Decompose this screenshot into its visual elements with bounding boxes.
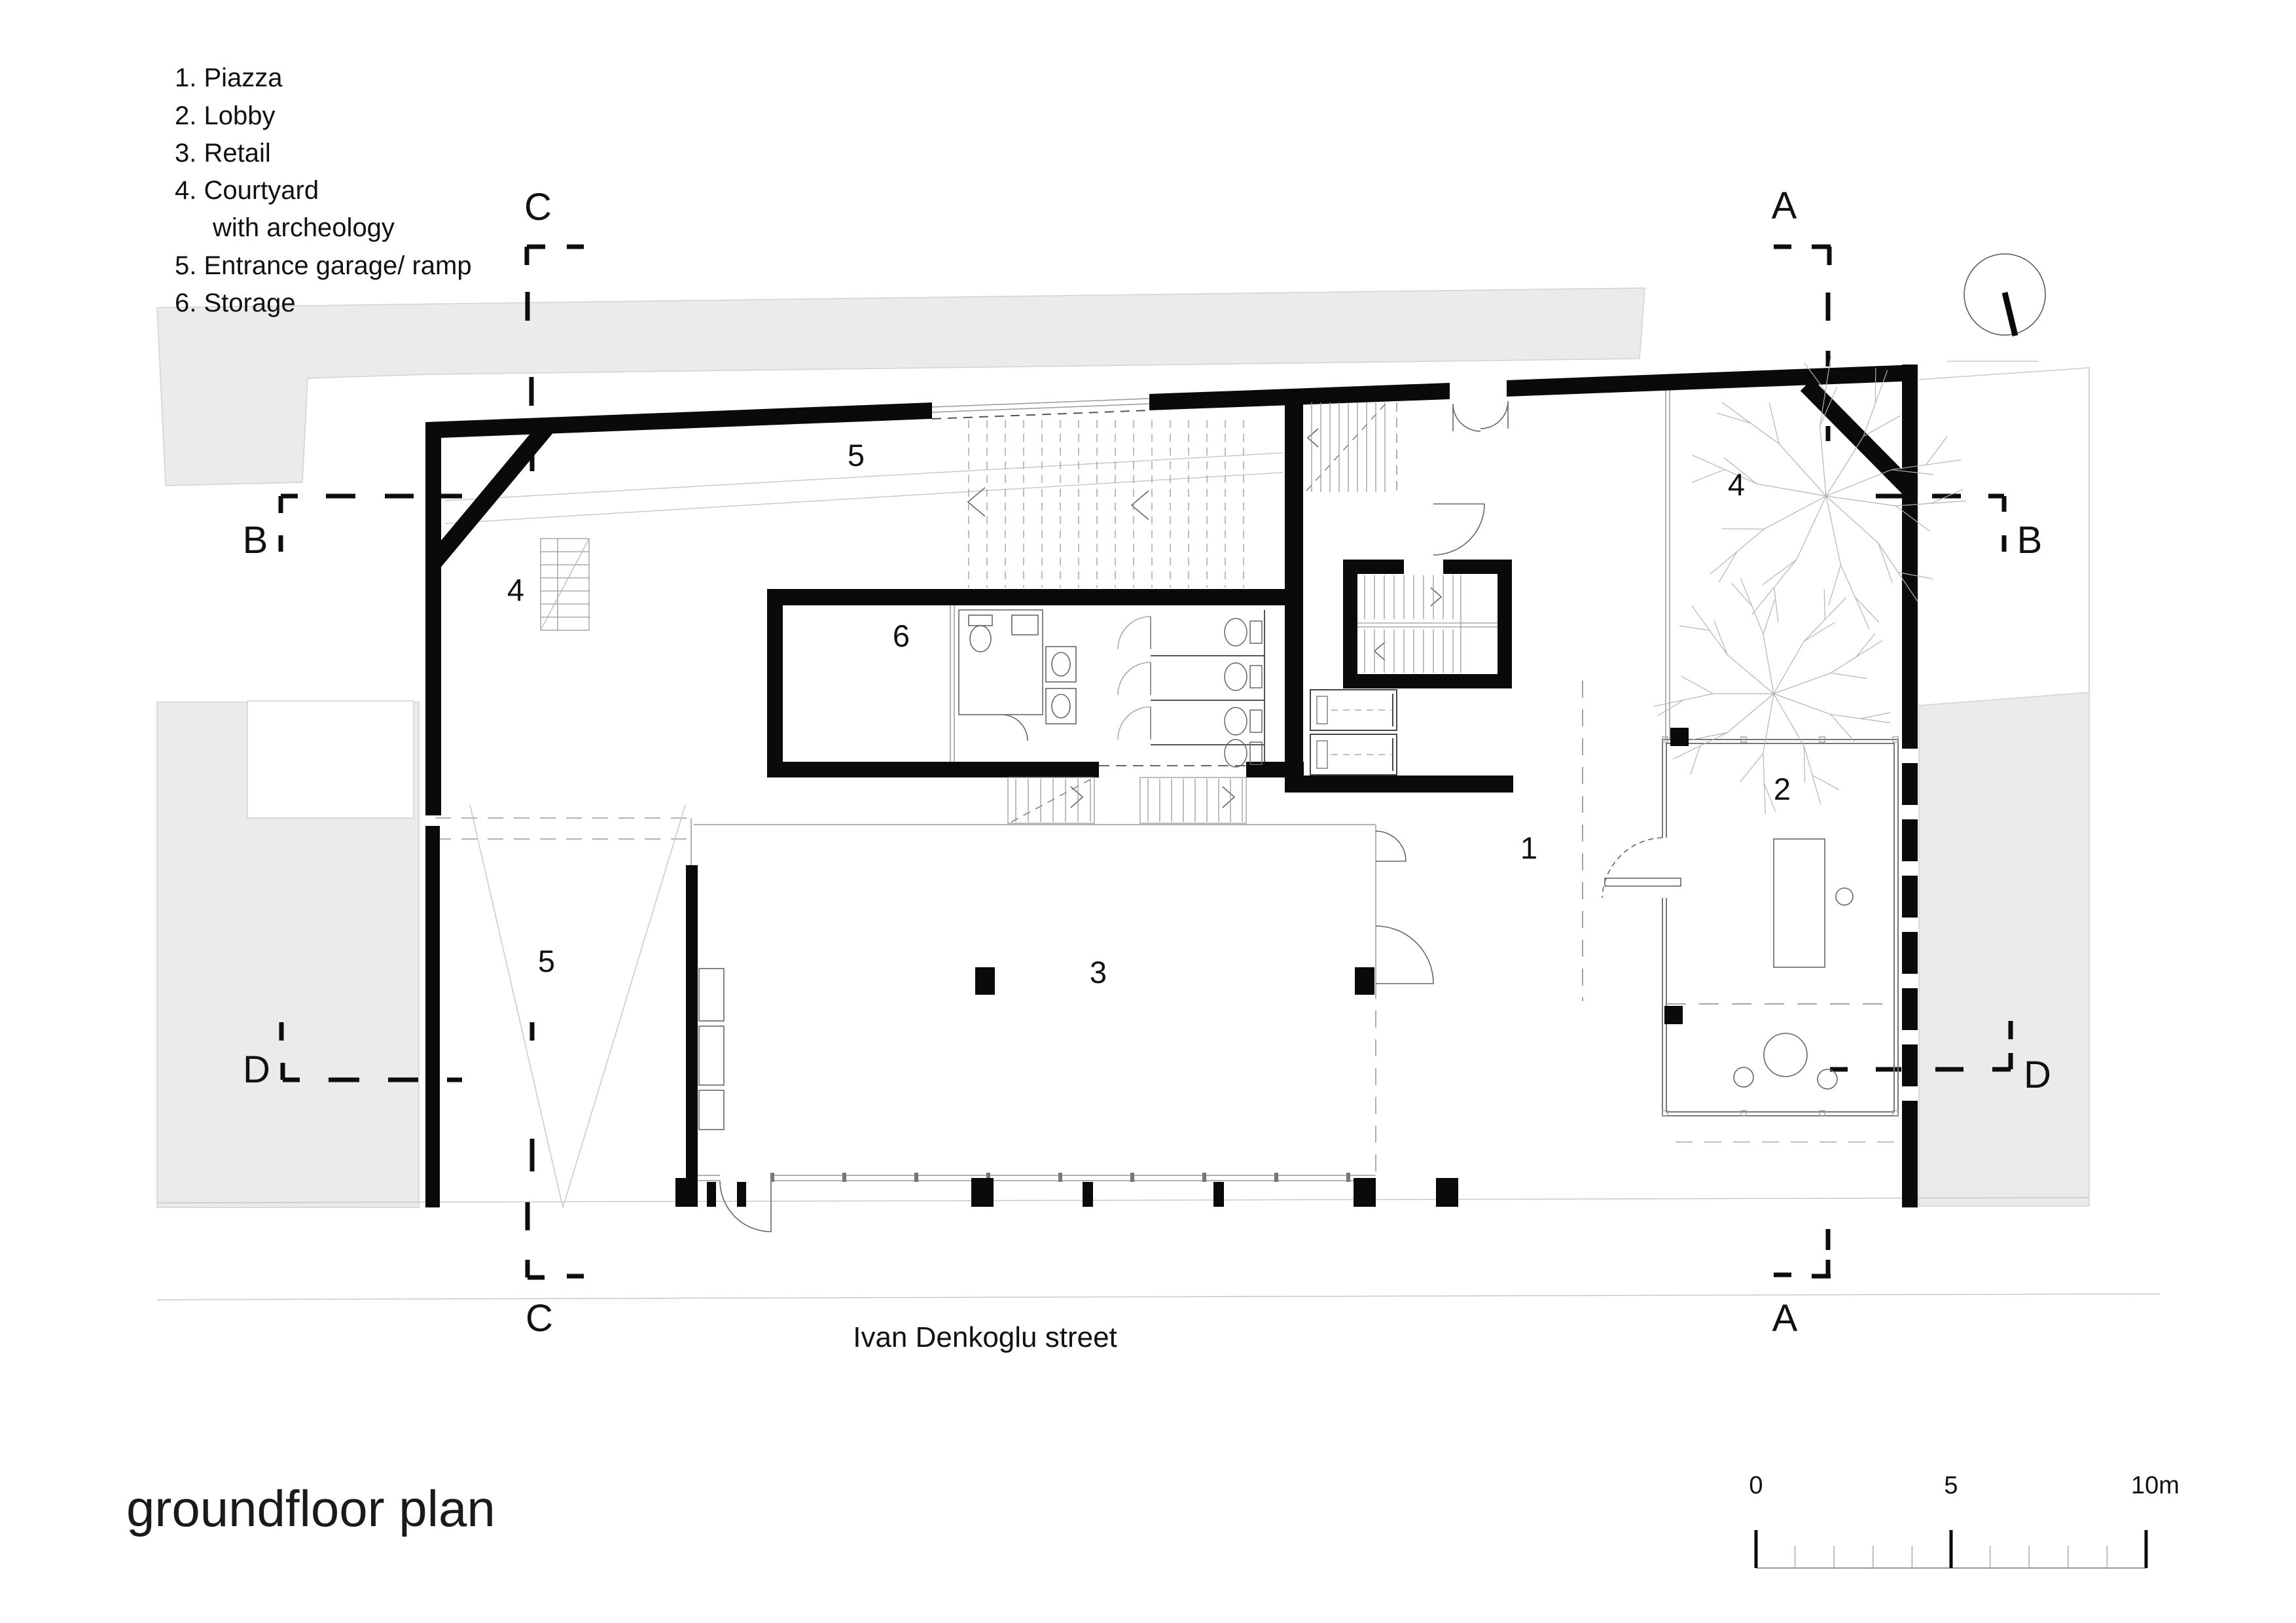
- shaft-wall-bottom: [1343, 674, 1512, 688]
- neighbor-right: [1919, 692, 2089, 1206]
- street-edge-line: [157, 1198, 2089, 1203]
- elevator-bottom-wall: [1285, 776, 1513, 793]
- column: [1436, 1178, 1458, 1207]
- garage-door-line-2: [932, 404, 1149, 412]
- interior-thin: [435, 383, 1898, 1232]
- tree-twig: [1732, 583, 1752, 606]
- wc-toilet-tank: [969, 615, 992, 626]
- tree-twig: [1829, 565, 1841, 605]
- toilet-bowl: [1225, 740, 1247, 767]
- tree-branch: [1752, 496, 1826, 615]
- section-letter: C: [526, 1297, 553, 1340]
- floorplan-canvas: C A B B D D C A: [0, 0, 2296, 1623]
- scale-major-tick: [2145, 1530, 2148, 1568]
- core-bottom-wall-1: [767, 762, 1099, 777]
- toilet-stalls: [1118, 610, 1265, 767]
- section-letter: A: [1772, 185, 1797, 227]
- left-wall-lower: [425, 826, 440, 1207]
- toilet-bowl: [1225, 618, 1247, 646]
- toilet-bowl: [1225, 707, 1247, 735]
- stall-door-arc: [1118, 616, 1151, 649]
- tree-branch: [1774, 694, 1891, 723]
- column: [1355, 967, 1374, 995]
- legend-item-6: 6. Storage: [175, 289, 296, 317]
- tree-twig: [1831, 715, 1855, 742]
- tree-twig: [1824, 589, 1825, 619]
- toilet-bowl: [1225, 663, 1247, 690]
- wc-sink: [1012, 615, 1038, 635]
- tree-twig: [1831, 673, 1867, 678]
- tree-twig: [1861, 713, 1890, 719]
- entry-door-leaf-2: [1480, 401, 1508, 429]
- retail-left-wall: [686, 865, 698, 1178]
- tree-branch: [1693, 455, 1826, 496]
- tree-twig: [1679, 626, 1710, 630]
- column: [1354, 1178, 1376, 1207]
- lobby-table-large: [1764, 1033, 1807, 1077]
- scale-major-tick: [1755, 1530, 1758, 1568]
- sink-2: [1046, 688, 1076, 724]
- tree-twig: [1875, 368, 1876, 404]
- section-tick: [528, 1022, 584, 1277]
- column: [707, 1182, 716, 1207]
- right-wall-dash: [1902, 932, 1918, 974]
- reception-desk: [1774, 839, 1825, 967]
- display-case-1: [699, 969, 724, 1021]
- room-labels: 4 5 6 4 1 2 3 5: [507, 438, 1791, 990]
- shaft-arrow-2: [1374, 642, 1385, 660]
- ramp-arrow-2: [1132, 491, 1149, 520]
- hall-door-arc: [1433, 504, 1484, 555]
- tree-branch: [1774, 641, 1882, 694]
- mullion: [842, 1173, 846, 1182]
- lobby-door-gap: [1660, 838, 1669, 898]
- column: [1213, 1182, 1224, 1207]
- toilet-tank: [1250, 666, 1262, 688]
- column: [1670, 728, 1689, 746]
- legend: 1. Piazza 2. Lobby 3. Retail 4. Courtyar…: [175, 63, 472, 317]
- stall-door-arc: [1118, 662, 1151, 695]
- upper-stair-arrow: [1308, 429, 1318, 447]
- shaft-wall-left: [1343, 560, 1357, 688]
- toilet-tank: [1250, 710, 1262, 732]
- column: [971, 1178, 994, 1207]
- piazza-door-arc-2: [1376, 926, 1433, 984]
- mullion: [1058, 1173, 1062, 1182]
- upper-stair-dash: [1306, 404, 1385, 491]
- room-label-lobby: 2: [1774, 772, 1791, 806]
- room-label-piazza: 1: [1520, 830, 1537, 865]
- tree-twig: [1722, 529, 1765, 529]
- stair-treads: [1008, 402, 1498, 823]
- toilet-tank: [1250, 742, 1262, 764]
- scale-ticks: [1755, 1530, 2148, 1568]
- legend-item-4b: with archeology: [212, 213, 395, 242]
- page-title: groundfloor plan: [126, 1480, 495, 1537]
- tree-twig: [1774, 587, 1778, 622]
- scale-label-0: 0: [1749, 1472, 1763, 1499]
- storage-left-wall: [767, 589, 783, 777]
- core-right-wall: [1285, 398, 1303, 791]
- entry-door-leaf-1: [1453, 404, 1480, 431]
- scale-label-5: 5: [1944, 1472, 1958, 1499]
- mullion: [1346, 1173, 1350, 1182]
- room-label-courtyard-left: 4: [507, 573, 524, 607]
- display-case-3: [699, 1090, 724, 1130]
- tree-twig: [1763, 599, 1775, 634]
- scale-bar: 0 5 10m: [1749, 1472, 2179, 1568]
- mullion: [1274, 1173, 1278, 1182]
- room-label-retail: 3: [1090, 955, 1107, 990]
- top-wall-seg-3: [1507, 365, 1918, 397]
- column: [975, 967, 995, 995]
- tree-branch: [1763, 694, 1774, 814]
- section-marker-c-bottom: C: [526, 1022, 584, 1340]
- column: [1083, 1182, 1093, 1207]
- legend-item-2: 2. Lobby: [175, 101, 275, 130]
- right-wall-upper: [1902, 365, 1918, 707]
- section-letter: A: [1772, 1297, 1798, 1340]
- tree-twig: [1878, 543, 1892, 583]
- wc-door-arc: [1001, 715, 1028, 741]
- sink-1: [1046, 647, 1076, 682]
- desk-stool: [1836, 888, 1853, 905]
- wc-toilet-bowl: [970, 626, 991, 652]
- section-letter: B: [243, 519, 268, 562]
- room-label-ramp-top: 5: [848, 438, 865, 473]
- mullion: [1202, 1173, 1206, 1182]
- scale-major-tick: [1950, 1530, 1953, 1568]
- tree-branch: [1774, 597, 1846, 694]
- ramp2-v-right: [563, 805, 685, 1207]
- ramp-treads: [969, 420, 1244, 588]
- tree-branch: [1692, 606, 1774, 694]
- section-letter: D: [2024, 1054, 2051, 1096]
- neighbor-outline-topright: [1919, 368, 2089, 692]
- street-curb-line: [157, 1294, 2160, 1300]
- legend-item-5: 5. Entrance garage/ ramp: [175, 251, 472, 280]
- mullion: [770, 1173, 774, 1182]
- room-label-storage: 6: [893, 618, 910, 653]
- stall-door-arc: [1118, 707, 1151, 740]
- tree-twig: [1692, 470, 1725, 483]
- columns: [675, 728, 1689, 1207]
- section-marker-a-bottom: A: [1772, 1229, 1831, 1340]
- lobby-door-arc: [1602, 838, 1662, 898]
- right-wall-dash: [1902, 707, 1918, 749]
- small-stair-diag: [541, 539, 589, 630]
- north-needle: [2005, 293, 2015, 336]
- mullion: [914, 1173, 918, 1182]
- mullion: [1130, 1173, 1134, 1182]
- tree-twig: [1804, 746, 1804, 783]
- tree-twig: [1681, 676, 1713, 694]
- section-tick: [1876, 496, 2004, 552]
- tree-branch: [1673, 694, 1774, 759]
- section-tick: [1774, 1229, 1831, 1276]
- lobby-table-small-2: [1818, 1069, 1837, 1089]
- ramp2-v-left: [470, 805, 563, 1207]
- corner-brace-right: [1806, 385, 1909, 488]
- section-letter: C: [524, 186, 552, 228]
- section-letter: D: [243, 1048, 270, 1091]
- display-case-2: [699, 1026, 724, 1085]
- tree-branch: [1654, 694, 1774, 706]
- column: [1664, 1006, 1683, 1024]
- elevators: [1310, 690, 1397, 775]
- tree-twig: [1863, 416, 1900, 437]
- tree-twig: [1717, 413, 1751, 423]
- core-top-wall: [767, 589, 1285, 605]
- toilet-tank: [1250, 621, 1262, 643]
- lobby-table-small-1: [1734, 1067, 1753, 1087]
- garage-door-dashed: [932, 410, 1149, 419]
- tree-twig: [1692, 733, 1727, 740]
- legend-item-3: 3. Retail: [175, 139, 271, 168]
- right-wall-dashes: [1902, 707, 1918, 1143]
- shaft-arrow-1: [1431, 588, 1441, 606]
- street-label: Ivan Denkoglu street: [853, 1321, 1117, 1353]
- right-wall-dash: [1902, 819, 1918, 861]
- tree-twig: [1740, 753, 1763, 781]
- sink-1-bowl: [1052, 652, 1070, 676]
- column: [737, 1182, 746, 1207]
- scale-label-10m: 10m: [2131, 1472, 2179, 1499]
- room-label-courtyard-right: 4: [1728, 467, 1745, 502]
- shaft-wall-right: [1498, 560, 1512, 688]
- tree-twig: [1714, 621, 1727, 655]
- right-wall-dash: [1902, 1101, 1918, 1143]
- lobby-bench: [1605, 878, 1681, 886]
- right-wall-dash: [1902, 988, 1918, 1030]
- tree-twig: [1926, 437, 1947, 465]
- tree-branch: [1740, 578, 1774, 694]
- neighbor-left-notch: [247, 701, 414, 818]
- tree-twig: [1856, 633, 1875, 657]
- column: [675, 1178, 698, 1207]
- tree-twig: [1855, 597, 1879, 622]
- north-arrow: [1964, 254, 2045, 336]
- piazza-door-arc-1: [1376, 831, 1406, 861]
- legend-item-1: 1. Piazza: [175, 63, 283, 92]
- right-wall-dash: [1902, 1044, 1918, 1086]
- legend-item-4: 4. Courtyard: [175, 176, 319, 205]
- terrace-arrow-2: [1223, 787, 1234, 808]
- ramp-edge-2: [445, 473, 1283, 524]
- tree-twig: [1719, 552, 1737, 582]
- garage-door-line-1: [932, 399, 1149, 407]
- right-wall-dash: [1902, 876, 1918, 918]
- terrace-arrow-1: [1071, 787, 1083, 808]
- right-wall-dash: [1902, 763, 1918, 805]
- left-wall-upper: [425, 422, 441, 815]
- top-wall-seg-1: [425, 402, 932, 438]
- drawing-page: C A B B D D C A: [0, 0, 2296, 1623]
- small-stair: [541, 539, 589, 630]
- sink-2-bowl: [1052, 694, 1070, 718]
- room-label-ramp-bottom: 5: [538, 944, 555, 978]
- section-letter: B: [2017, 519, 2043, 562]
- tree-branch: [1710, 496, 1826, 575]
- tree-twig: [1812, 776, 1839, 790]
